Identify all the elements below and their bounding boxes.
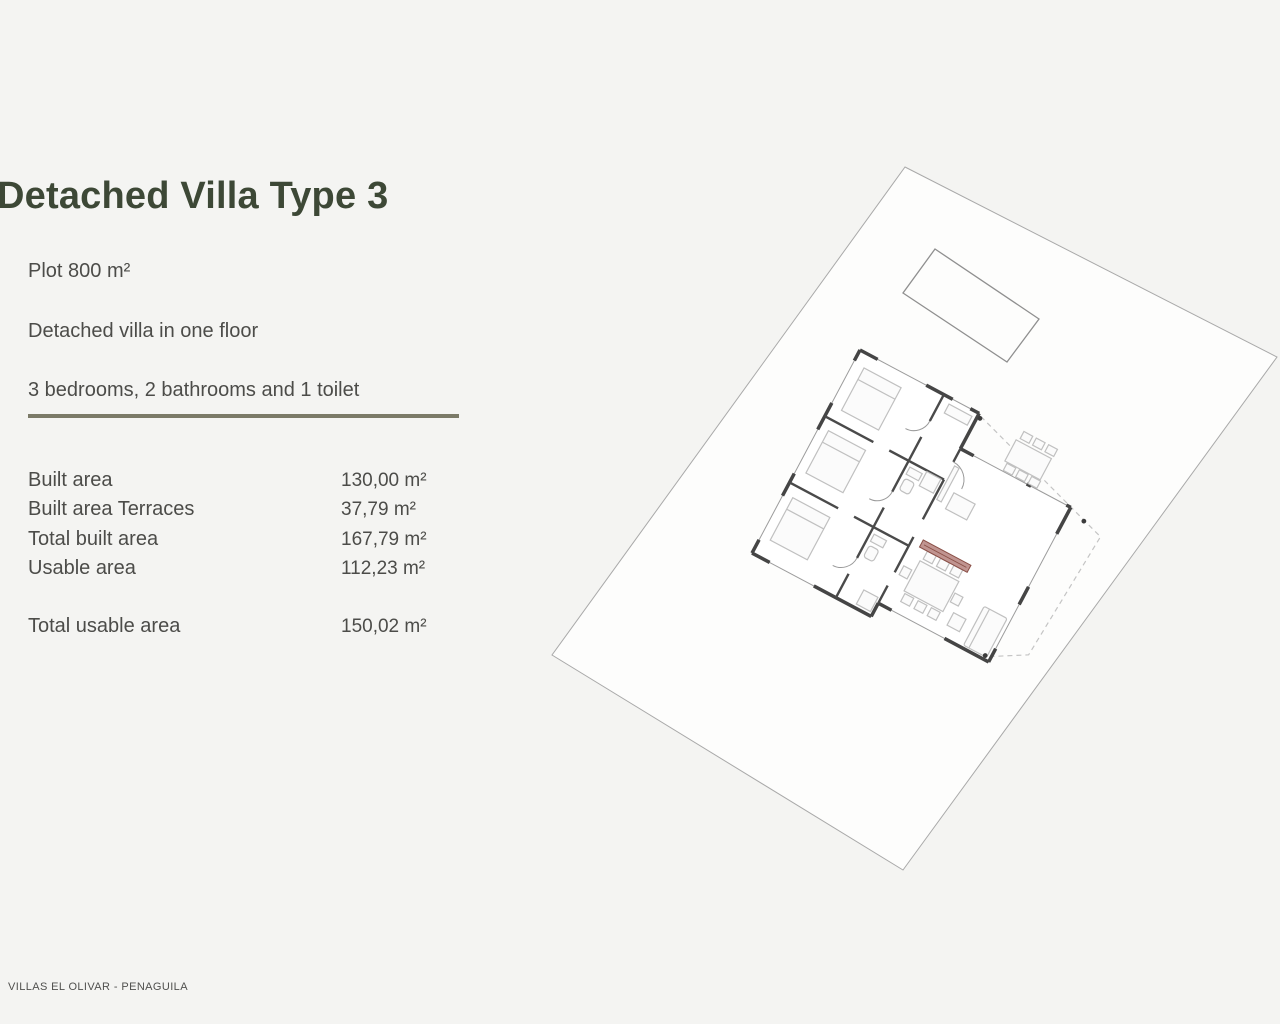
site-plan-drawing bbox=[0, 0, 1280, 1024]
